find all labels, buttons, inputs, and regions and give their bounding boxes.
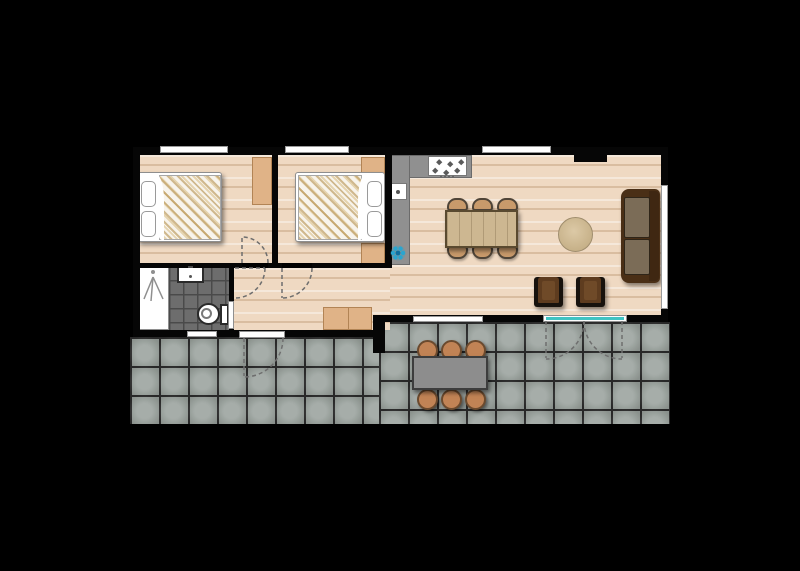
dining-table <box>445 210 518 248</box>
bedroom1-wardrobe <box>252 157 272 205</box>
sofa-cushion <box>624 239 650 275</box>
bedroom2-pillow <box>367 181 382 207</box>
wall-bedroom2-kitchen <box>385 147 392 268</box>
wall-left <box>133 147 140 337</box>
entrance-door-frame <box>239 331 285 338</box>
floor-plan-canvas <box>0 0 800 571</box>
bedroom1-bed <box>137 172 222 242</box>
hallway-cabinet-divider <box>348 308 349 329</box>
armchair-seat-cushion <box>542 281 555 300</box>
bedroom2-pillow <box>367 211 382 237</box>
wall-flue <box>574 147 607 162</box>
bathroom-door-leaf <box>228 301 234 329</box>
toilet-bowl-inner <box>201 308 212 319</box>
outdoor-chair <box>417 389 438 410</box>
outdoor-chair <box>441 389 462 410</box>
patio-door-glass <box>546 317 624 320</box>
terrace-floor-left <box>130 337 379 424</box>
washbasin-drain <box>189 275 192 278</box>
wall-hall-top-b <box>268 263 282 268</box>
bedroom1-window <box>160 146 228 153</box>
armchair <box>534 277 563 307</box>
bedroom2-window <box>285 146 349 153</box>
outdoor-table <box>412 356 488 390</box>
living-bottom-window <box>413 316 483 322</box>
bathroom-window <box>187 331 217 337</box>
living-right-window <box>661 185 668 309</box>
bedroom1-pillow <box>141 211 156 237</box>
sofa-cushion <box>624 197 650 238</box>
round-rug <box>558 217 593 252</box>
bedroom1-pillow <box>141 181 156 207</box>
wall-bathroom-side <box>229 263 234 301</box>
wall-bedroom-divider <box>272 147 278 268</box>
bedroom2-bed <box>295 172 385 242</box>
wall-hall-top-a <box>138 263 242 268</box>
bedroom2-duvet-wave <box>358 175 367 240</box>
hotplate-dot <box>396 190 400 194</box>
bedroom1-duvet <box>159 175 221 240</box>
outdoor-chair <box>465 389 486 410</box>
armchair <box>576 277 605 307</box>
armchair-seat-cushion <box>584 281 597 300</box>
living-top-window <box>482 146 551 153</box>
wall-hall-top-c <box>312 263 388 268</box>
bedroom2-wardrobe-bottom <box>361 243 385 265</box>
hallway-cabinet <box>323 307 372 330</box>
sofa-backrest <box>649 191 659 281</box>
hob <box>428 156 467 176</box>
bedroom2-duvet <box>298 175 362 240</box>
sofa <box>621 189 660 283</box>
shower <box>138 267 169 330</box>
